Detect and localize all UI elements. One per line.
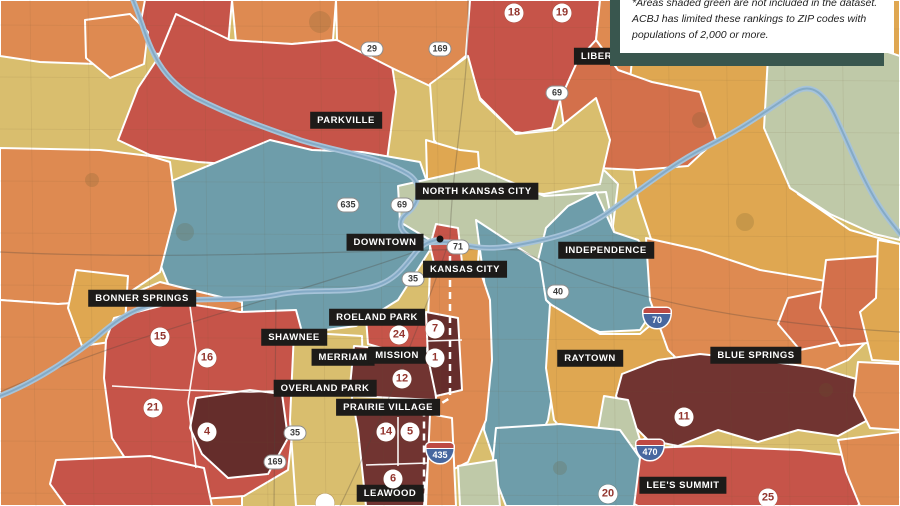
rank-marker-1: 1 [426, 349, 445, 368]
rank-marker-19: 19 [553, 4, 572, 23]
rank-marker-14: 14 [377, 423, 396, 442]
rank-marker-12: 12 [393, 370, 412, 389]
rank-marker-15: 15 [151, 328, 170, 347]
map-canvas: 2916969635697135407035169435470 LIBERTYP… [0, 0, 900, 506]
rank-marker-21: 21 [144, 399, 163, 418]
rank-marker-4: 4 [198, 423, 217, 442]
rank-marker-7: 7 [426, 320, 445, 339]
rank-markers-layer: 181915162142471121456112025 [0, 0, 900, 506]
dataset-note: *Areas shaded green are not included in … [620, 0, 894, 53]
rank-marker-25: 25 [759, 489, 778, 506]
rank-marker-20: 20 [599, 485, 618, 504]
rank-marker-18: 18 [505, 4, 524, 23]
rank-marker-16: 16 [198, 349, 217, 368]
rank-marker-11: 11 [675, 408, 694, 427]
dataset-note-text: *Areas shaded green are not included in … [632, 0, 877, 41]
rank-marker-24: 24 [390, 326, 409, 345]
rank-marker-6: 6 [384, 470, 403, 489]
rank-marker-5: 5 [401, 423, 420, 442]
rank-marker-partial [316, 494, 335, 506]
